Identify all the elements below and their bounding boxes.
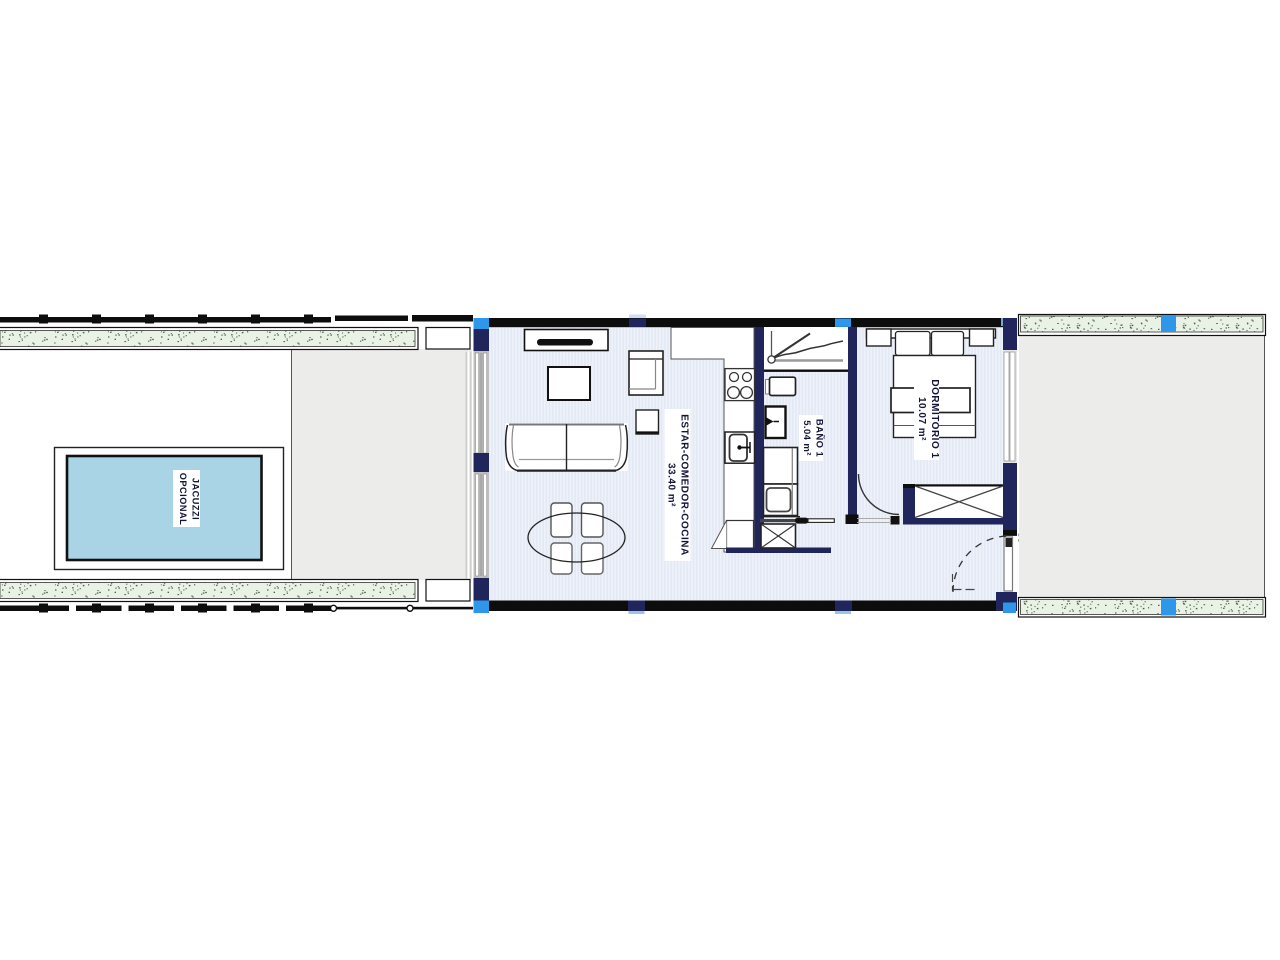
svg-text:BAÑO 15.04 m²: BAÑO 15.04 m² bbox=[801, 419, 825, 458]
